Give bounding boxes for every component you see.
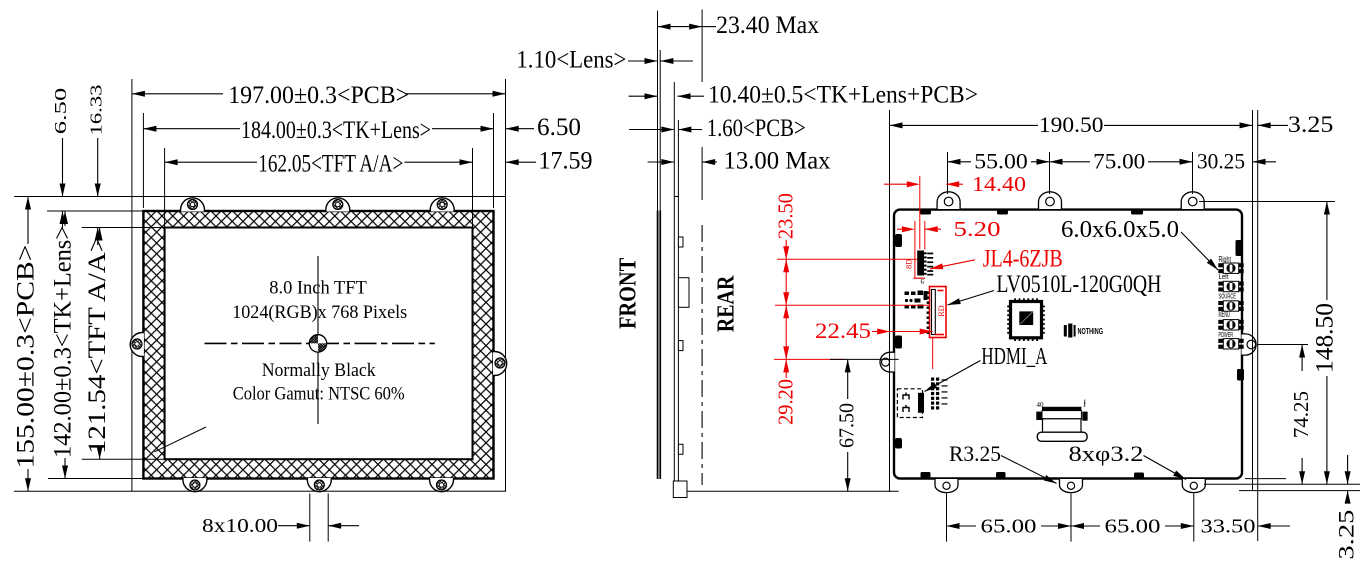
svg-text:30.25: 30.25 xyxy=(1197,148,1245,173)
svg-text:JL4-6ZJB: JL4-6ZJB xyxy=(983,245,1063,272)
svg-text:5.20: 5.20 xyxy=(954,217,1001,241)
svg-text:R3.25: R3.25 xyxy=(949,441,1001,466)
svg-text:3.25: 3.25 xyxy=(1288,112,1334,137)
svg-text:14.40: 14.40 xyxy=(972,172,1026,196)
svg-text:55.00: 55.00 xyxy=(974,148,1028,173)
svg-text:74.25: 74.25 xyxy=(1289,391,1313,438)
svg-text:17.59: 17.59 xyxy=(539,148,593,175)
svg-text:16.33: 16.33 xyxy=(87,85,106,136)
svg-text:POWER: POWER xyxy=(1219,332,1234,339)
svg-text:MENU: MENU xyxy=(1219,310,1231,319)
svg-text:REAR: REAR xyxy=(714,275,740,332)
svg-text:LV0510L-120G0QH: LV0510L-120G0QH xyxy=(996,271,1161,298)
svg-text:6: 6 xyxy=(921,278,925,286)
svg-text:184.00±0.3<TK+Lens>: 184.00±0.3<TK+Lens> xyxy=(241,117,431,144)
svg-text:29.20: 29.20 xyxy=(774,379,798,425)
svg-text:23.40 Max: 23.40 Max xyxy=(716,12,819,39)
svg-text:6.50: 6.50 xyxy=(537,114,581,141)
svg-text:121.54<TFT A/A>: 121.54<TFT A/A> xyxy=(84,236,111,454)
svg-text:23.50: 23.50 xyxy=(774,193,798,239)
svg-text:162.05<TFT A/A>: 162.05<TFT A/A> xyxy=(258,150,403,177)
svg-text:67.50: 67.50 xyxy=(835,403,859,448)
svg-text:6.0x6.0x5.0: 6.0x6.0x5.0 xyxy=(1061,217,1179,243)
svg-text:FRONT: FRONT xyxy=(616,258,642,329)
svg-text:3.25: 3.25 xyxy=(1334,510,1359,560)
svg-text:Left: Left xyxy=(1219,274,1229,281)
svg-text:Color Gamut: NTSC 60%: Color Gamut: NTSC 60% xyxy=(233,384,405,405)
svg-text:SOURCE: SOURCE xyxy=(1219,294,1237,301)
svg-text:75.00: 75.00 xyxy=(1093,148,1145,173)
svg-text:13.00 Max: 13.00 Max xyxy=(724,148,831,175)
svg-text:HDMI_A: HDMI_A xyxy=(981,344,1047,370)
svg-text:22.45: 22.45 xyxy=(815,318,871,343)
svg-text:Right: Right xyxy=(1219,255,1232,264)
svg-text:197.00±0.3<PCB>: 197.00±0.3<PCB> xyxy=(228,82,409,109)
svg-text:65.00: 65.00 xyxy=(1105,516,1161,538)
svg-text:8xφ3.2: 8xφ3.2 xyxy=(1069,441,1144,466)
svg-text:1.60<PCB>: 1.60<PCB> xyxy=(707,115,806,142)
svg-text:6.50: 6.50 xyxy=(51,88,70,135)
svg-text:148.50: 148.50 xyxy=(1312,303,1339,373)
svg-text:RD: RD xyxy=(937,305,946,316)
svg-text:65.00: 65.00 xyxy=(981,516,1037,538)
svg-text:155.00±0.3<PCB>: 155.00±0.3<PCB> xyxy=(13,245,40,469)
svg-text:33.50: 33.50 xyxy=(1201,516,1256,538)
svg-text:Normally Black: Normally Black xyxy=(262,360,376,381)
svg-text:1.10<Lens>: 1.10<Lens> xyxy=(516,47,626,74)
svg-text:10.40±0.5<TK+Lens+PCB>: 10.40±0.5<TK+Lens+PCB> xyxy=(708,82,978,109)
svg-text:142.00±0.3<TK+Lens>: 142.00±0.3<TK+Lens> xyxy=(50,226,77,458)
svg-text:8x10.00: 8x10.00 xyxy=(202,515,278,537)
svg-text:NOTHING: NOTHING xyxy=(1078,326,1104,336)
svg-text:1024(RGB)x 768 Pixels: 1024(RGB)x 768 Pixels xyxy=(232,302,407,323)
svg-text:8D: 8D xyxy=(905,259,914,269)
svg-text:190.50: 190.50 xyxy=(1039,112,1104,137)
